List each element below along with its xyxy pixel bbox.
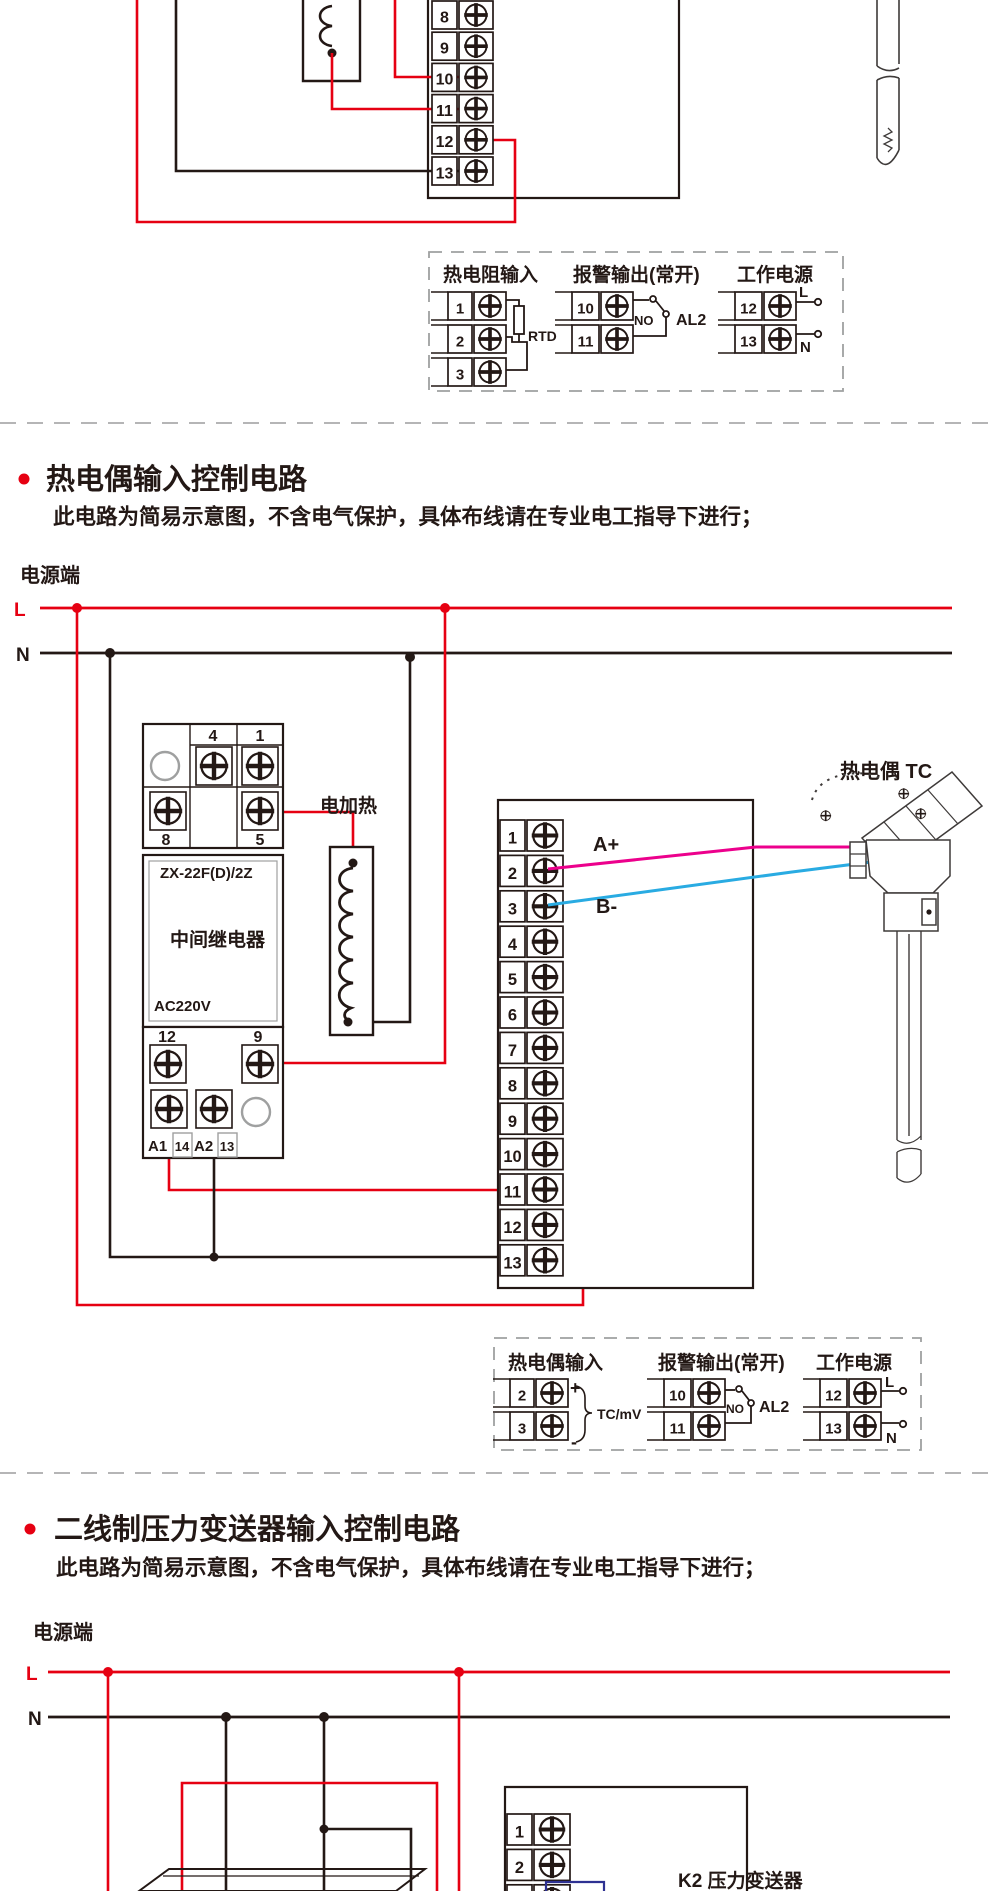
wiring-diagram-canvas: 8910111213 热电阻输入 报警输出(常开) 工作电源 123 1011 … [0,0,990,1891]
section-tc-header: 热电偶输入控制电路 此电路为简易示意图，不含电气保护，具体布线请在专业电工指导下… [19,462,763,587]
legend-power-title: 工作电源 [816,1351,892,1374]
bullet-icon [25,1524,36,1535]
legend-alarm-title: 报警输出(常开) [573,263,700,286]
wire-black [324,1829,411,1891]
relay-terminal-label: 5 [256,832,265,849]
terminal-number: 6 [508,1007,517,1025]
wire-plus-label: A+ [593,834,619,856]
terminal-number: 9 [508,1113,517,1131]
thermocouple-icon: 热电偶 TC [812,759,982,1182]
line-label: L [26,1664,38,1685]
terminal-number: 13 [436,165,454,182]
line-label: L [799,284,808,301]
terminal-number: 12 [825,1387,842,1404]
terminal-number: 12 [740,300,757,317]
terminal-number: 13 [503,1254,521,1272]
signal-type-label: TC/mV [597,1406,642,1422]
power-end-label: 电源端 [33,1621,93,1644]
terminal-number: 2 [508,865,517,883]
terminal-number: 2 [456,333,464,350]
terminal-number: 11 [436,103,453,120]
section-title: 二线制压力变送器输入控制电路 [54,1512,461,1546]
terminal-number: 11 [504,1184,521,1202]
relay-terminal-label: 4 [209,728,218,745]
terminal-number: 12 [436,134,454,151]
terminal-number: 3 [518,1420,526,1437]
bullet-icon [19,474,30,485]
power-wires [881,1388,906,1427]
legend-power-title: 工作电源 [737,263,813,286]
terminal-number: 10 [436,72,454,89]
relay-terminal-label: 13 [220,1139,234,1154]
legend-input-title: 热电偶输入 [508,1351,603,1374]
terminal-number: 7 [508,1042,517,1060]
no-contact-label: NO [726,1402,744,1416]
relay-unit: 4 1 8 5 ZX-22F(D)/2Z 中间继电器 AC220V 12 9 A… [143,724,283,1158]
rtd-label: RTD [528,328,557,344]
heater-coil-symbol [320,6,332,46]
controller-terminal-strip: 123 [507,1814,570,1891]
rtd-probe-icon [877,0,899,164]
terminal-number: 1 [508,830,517,848]
legend-alarm-terminals: 1011 [647,1379,725,1440]
relay-voltage: AC220V [154,998,211,1015]
terminal-strip-top: 8910111213 [432,1,493,185]
rtd-sensor-symbol [506,300,527,370]
wire-minus-label: B- [596,896,617,918]
terminal-number: 11 [670,1420,686,1437]
relay-terminal-label: A1 [148,1138,167,1155]
line-label: L [14,600,26,621]
pt-circuit: L N 123 K2 压力变送器 [26,1664,950,1891]
junction-dot [349,859,358,868]
section-subtitle: 此电路为简易示意图，不含电气保护，具体布线请在专业电工指导下进行； [53,504,763,529]
terminal-number: 13 [740,333,757,350]
plus-label: + [570,1378,581,1398]
terminal-number: 8 [508,1077,517,1095]
tc-circuit: L N 4 1 8 5 [14,600,982,1305]
neutral-label: N [28,1709,42,1730]
junction-dot [320,1825,329,1834]
terminal-number: 2 [518,1387,526,1404]
terminal-number: 13 [825,1420,842,1437]
section-pt-header: 二线制压力变送器输入控制电路 此电路为简易示意图，不含电气保护，具体布线请在专业… [25,1512,766,1644]
terminal-number: 5 [508,971,517,989]
neutral-label: N [16,645,30,666]
relay-terminal-label: 14 [175,1139,190,1154]
terminal-number-box [507,1885,532,1891]
junction-dot [344,1018,353,1027]
relay-model: ZX-22F(D)/2Z [160,865,253,882]
terminal-number: 10 [503,1148,521,1166]
transmitter-label: K2 压力变送器 [678,1869,804,1891]
neutral-label: N [886,1430,897,1447]
section-title: 热电偶输入控制电路 [46,462,308,496]
terminal-number: 2 [515,1859,524,1877]
neutral-label: N [800,339,811,356]
terminal-number: 8 [440,9,449,26]
legend-alarm-terminals: 1011 [555,292,633,353]
relay-terminal-label: 8 [162,832,171,849]
legend-input-terminals: 23 [493,1379,568,1440]
terminal-number: 10 [669,1387,686,1404]
terminal-number: 1 [515,1824,524,1842]
legend-tc: 热电偶输入 报警输出(常开) 工作电源 23 1011 1213 + - TC/… [493,1338,921,1452]
section-subtitle: 此电路为简易示意图，不含电气保护，具体布线请在专业电工指导下进行； [56,1555,766,1580]
wire-red-loop [182,1783,437,1891]
terminal-number: 10 [577,300,594,317]
relay-terminal-label: A2 [194,1138,213,1155]
relay-name: 中间继电器 [170,928,266,951]
alarm-name-label: AL2 [759,1399,789,1416]
terminal-number: 3 [508,900,517,918]
legend-rtd: 热电阻输入 报警输出(常开) 工作电源 123 1011 1213 RTD NO… [429,252,843,391]
terminal-number: 11 [578,333,594,350]
line-label: L [885,1374,894,1391]
heater-coil: 电加热 [320,794,377,1035]
wiring-diagram-page: { "colors": {"red":"#e60012","pink":"#ec… [0,0,990,1891]
relay-terminal-label: 12 [158,1029,176,1046]
legend-alarm-title: 报警输出(常开) [658,1351,785,1374]
heater-label: 电加热 [320,794,377,817]
power-wires [796,299,821,337]
no-contact-label: NO [634,313,654,328]
legend-power-terminals: 1213 [803,1379,881,1440]
alarm-name-label: AL2 [676,312,706,329]
terminal-number: 12 [503,1219,521,1237]
legend-input-terminals: 123 [431,292,506,386]
terminal-number: 1 [456,300,464,317]
legend-input-title: 热电阻输入 [443,263,538,286]
power-end-label: 电源端 [20,564,80,587]
terminal-number: 4 [508,936,518,954]
thermocouple-label: 热电偶 TC [840,759,932,783]
relay-terminal-label: 9 [254,1029,263,1046]
relay-terminal-label: 1 [256,728,265,745]
legend-power-terminals: 1213 [718,292,796,353]
partial-rtd-circuit: 8910111213 [137,0,899,222]
terminal-number: 9 [440,40,449,57]
terminal-number: 3 [456,366,464,383]
